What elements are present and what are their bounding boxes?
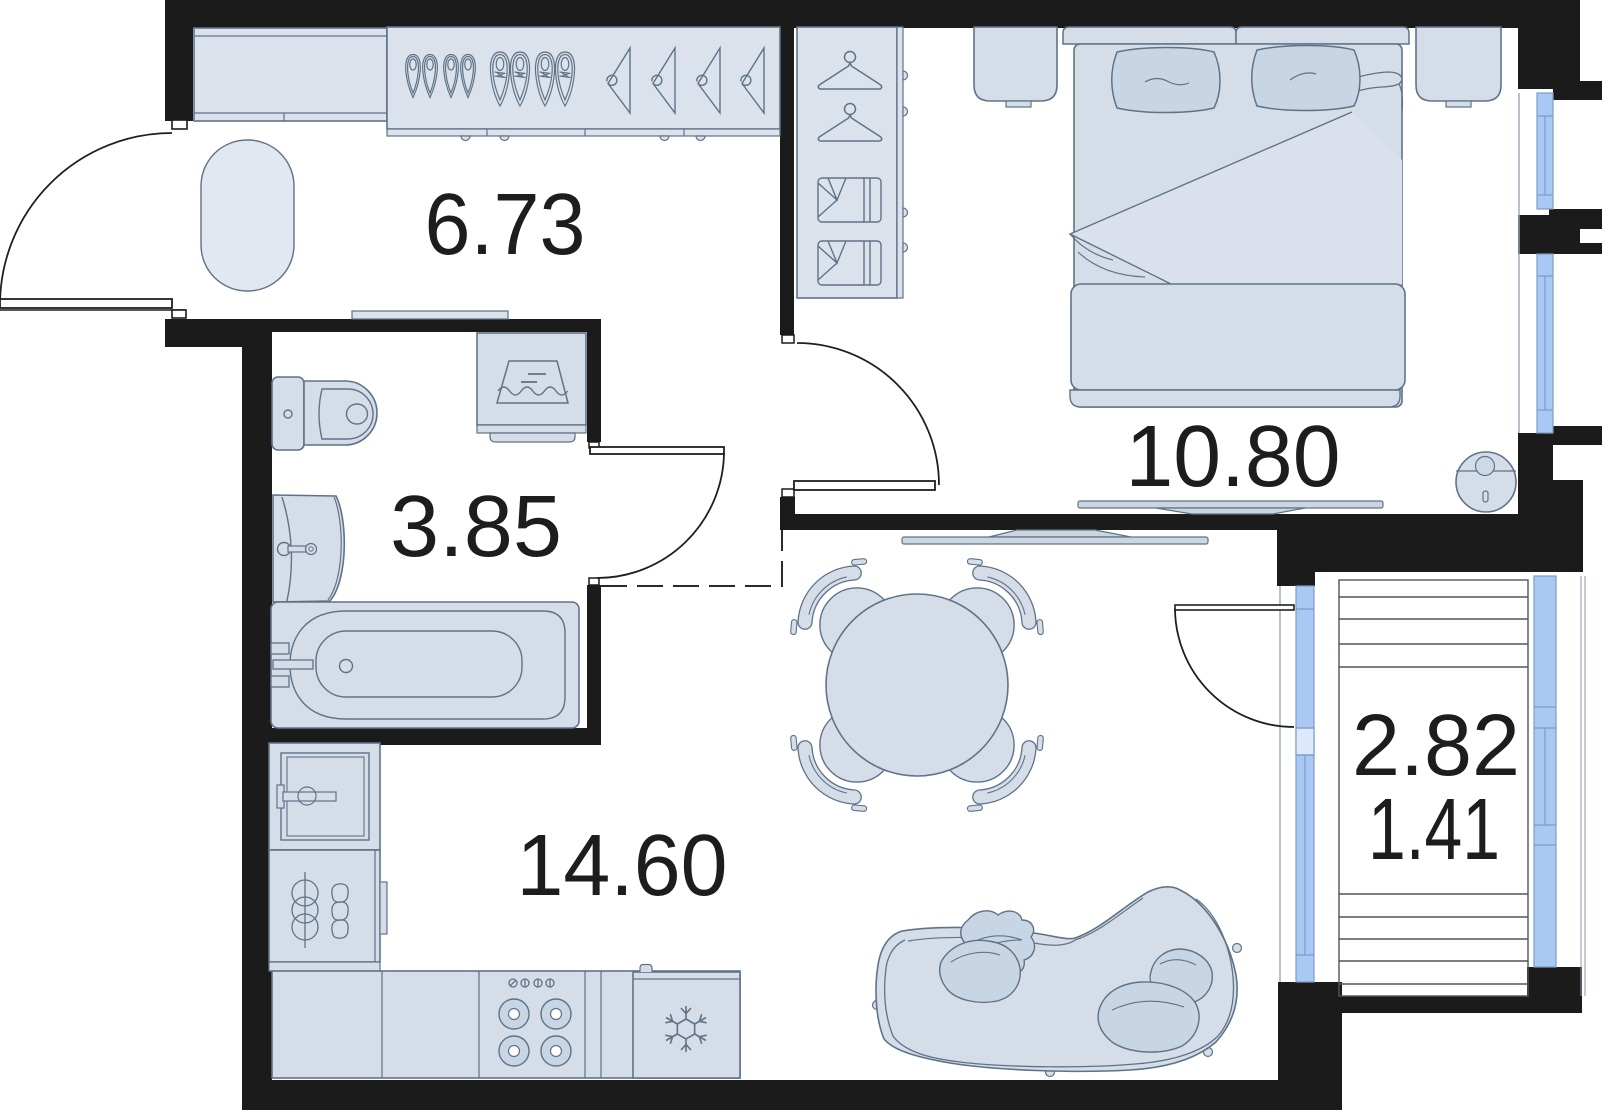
svg-text:14.60: 14.60	[517, 817, 728, 914]
svg-text:6.73: 6.73	[425, 176, 586, 273]
svg-text:3.85: 3.85	[390, 478, 562, 575]
svg-text:2.82: 2.82	[1352, 697, 1520, 794]
svg-text:10.80: 10.80	[1126, 408, 1341, 505]
svg-text:1.41: 1.41	[1368, 781, 1500, 878]
